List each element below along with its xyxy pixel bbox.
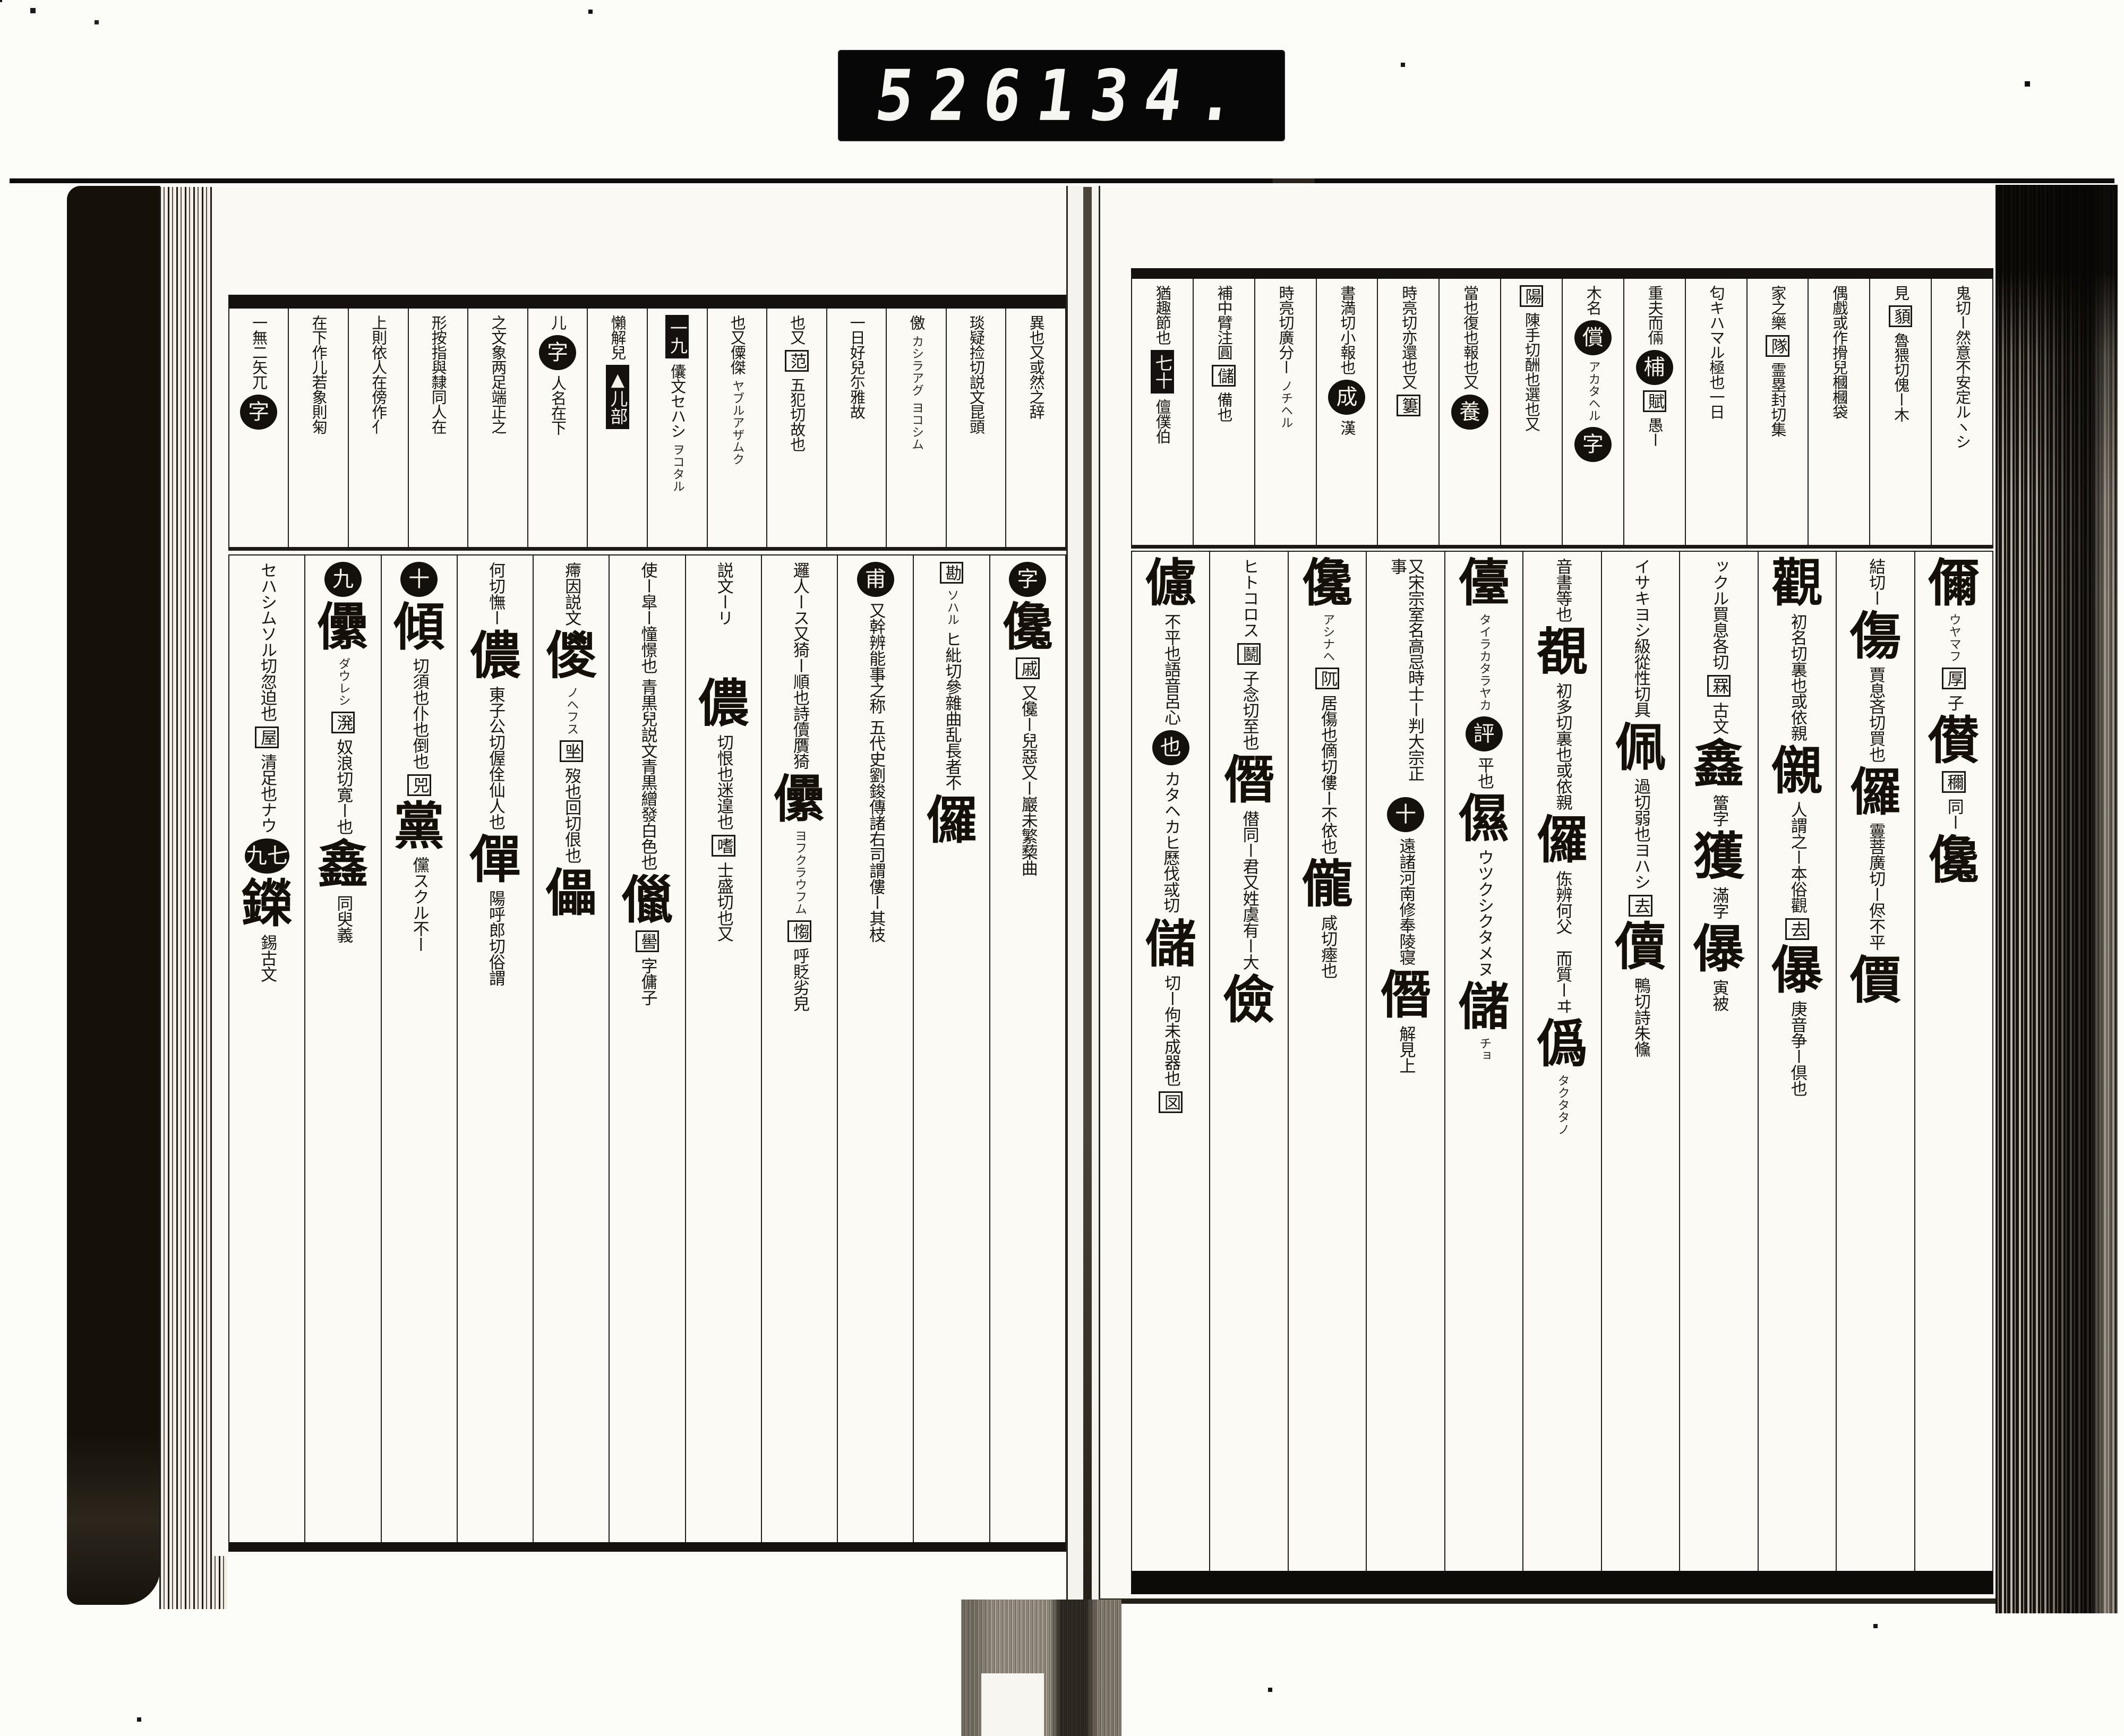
headword-char: 僭 xyxy=(1380,970,1431,1020)
annotation-text: 音書等也 xyxy=(1554,558,1571,622)
boxed-char: 鬭 xyxy=(1237,643,1261,665)
circle-marker: 字 xyxy=(539,335,576,370)
right-page-stack-edge xyxy=(1995,185,2118,1613)
katakana-gloss: ノヘフス xyxy=(565,686,578,735)
annotation-text: 儃僕伯 xyxy=(1154,399,1171,443)
left-header-column: 琰疑捡切説文昆頭 xyxy=(946,309,1006,547)
annotation-text: 異也又或然之辞 xyxy=(1027,315,1044,419)
boxed-char: 兕 xyxy=(407,774,431,796)
headword-char: 儤 xyxy=(1771,945,1822,995)
annotation-text: イサキヨシ級從性切具 xyxy=(1632,558,1649,717)
right-body-column: 又宋宗室名高忌時士ー判大宗正事十遠諸河南修奉陵寝僭解見上 xyxy=(1366,552,1444,1571)
headword-char: 儲 xyxy=(1145,919,1196,969)
annotation-text: 時亮切廣分ー xyxy=(1277,285,1294,374)
left-header-column: 形按指與隸同人在 xyxy=(408,309,468,547)
black-label: ▲儿部 xyxy=(606,365,629,429)
annotation-text: 呼貶劣皃 xyxy=(791,947,808,1011)
left-body-column: 九儽ダウレシ溌奴浪切寛ー也鑫同臾義 xyxy=(304,555,380,1542)
left-body-column: 何切憮ー儂東子公切偓佺仙人也僤陽呼郎切俗謂 xyxy=(457,555,533,1542)
right-header-column: 書満切小報也成漢 xyxy=(1316,279,1377,545)
annotation-text: 見 xyxy=(1892,285,1909,300)
annotation-text: 重夫而倆 xyxy=(1646,285,1663,345)
annotation-text: 家之樂 xyxy=(1769,285,1786,330)
annotation-text: 子念切至也 xyxy=(1240,670,1258,750)
annotation-text: 結切ー xyxy=(1866,558,1884,606)
katakana-gloss: タイラカタラヤカ xyxy=(1477,613,1490,711)
right-page-body-band: 儞ウヤマフ厚子儧穪同ー儳結切ー傷賈息吝切買也儸霻菩廣切ー侭不平價觀初名切裏也或依… xyxy=(1131,551,1993,1594)
headword-char: 儳 xyxy=(1928,835,1979,885)
headword-char: 儭 xyxy=(1771,746,1822,796)
annotation-text: 字傭子 xyxy=(639,957,656,1005)
book-top-edge-line xyxy=(10,178,2114,183)
right-body-column: イサキヨシ級從性切具佩過切弱也ヨハシ去儥鴨切詩朱儵 xyxy=(1601,552,1679,1571)
circle-marker: 養 xyxy=(1451,395,1488,430)
counter-left-digits: 526 xyxy=(872,61,1041,131)
circle-marker: 評 xyxy=(1466,716,1503,751)
annotation-text: 人名在下 xyxy=(550,375,566,435)
headword-char: 儓 xyxy=(1459,558,1510,608)
headword-char: 黨 xyxy=(393,801,444,851)
annotation-text: 人謂之ー本俗觀 xyxy=(1788,801,1806,913)
left-header-column: 儌カシラアグヨコシム xyxy=(886,309,946,547)
boxed-char: 儲 xyxy=(1212,365,1236,387)
circle-marker: 十 xyxy=(400,562,438,597)
left-page-stack-edge xyxy=(67,186,160,1605)
headword-char: 價 xyxy=(1850,955,1901,1005)
boxed-char: 㥮 xyxy=(787,920,811,942)
boxed-char: 穪 xyxy=(1942,771,1966,793)
spine-tab xyxy=(961,1600,1121,1736)
right-header-column: 鬼切ー然意不安定ルヽシ xyxy=(1931,279,1992,545)
headword-char: 儸 xyxy=(1537,815,1588,865)
annotation-text: 時亮切亦還也又 xyxy=(1400,285,1417,389)
boxed-char: 㘝 xyxy=(1159,1091,1183,1113)
headword-char: 儱 xyxy=(1302,859,1353,909)
annotation-text: 使ー皐ー憧憬也 xyxy=(639,562,656,673)
left-header-column: 一九儾文セハシヲコタル xyxy=(647,309,707,547)
annotation-text: 過切弱也ヨハシ xyxy=(1632,778,1649,890)
annotation-text: ヒトコロス xyxy=(1240,558,1258,638)
annotation-text: 也又僳傑 xyxy=(729,315,745,374)
annotation-text: 形按指與隸同人在 xyxy=(430,315,447,434)
katakana-gloss: ヨフクラウフム xyxy=(793,829,806,915)
annotation-text: 鴨切詩朱儵 xyxy=(1632,977,1649,1057)
right-header-column: 陽陳手切酬也選也又 xyxy=(1500,279,1562,545)
left-header-column: 儿字人名在下 xyxy=(527,309,587,547)
boxed-char: 賦 xyxy=(1643,390,1667,412)
annotation-text: 備也 xyxy=(1215,392,1232,422)
annotation-text: 賈息吝切買也 xyxy=(1866,666,1884,762)
left-header-column: 在下作儿若象則匊 xyxy=(288,309,348,547)
left-body-column: セハシムソル切忽迫也屋清足也ナウ九七鑅錫古文 xyxy=(229,555,304,1542)
annotation-text: 書満切小報也 xyxy=(1339,285,1355,374)
annotation-text: ックル買息各切 xyxy=(1710,558,1727,670)
annotation-text: 一無二矢兀 xyxy=(251,315,267,389)
annotation-text: 同ー xyxy=(1945,798,1963,830)
annotation-text: 上則依人在傍作亻 xyxy=(370,315,387,434)
annotation-text: 當也復也報也又 xyxy=(1462,285,1478,389)
black-label: 七十 xyxy=(1151,350,1174,394)
circle-marker: 字 xyxy=(1574,427,1612,462)
annotation-text: 儻スクル不ー xyxy=(410,857,428,952)
annotation-text: 庚音争ー倶也 xyxy=(1788,1000,1806,1096)
circle-marker: 償 xyxy=(1574,320,1612,355)
left-header-column: 上則依人在傍作亻 xyxy=(348,309,408,547)
left-page: 異也又或然之辞琰疑捡切説文昆頭儌カシラアグヨコシム一日好兒尓雅故也又范五犯切故也… xyxy=(212,187,1066,1556)
circle-marker: 成 xyxy=(1328,380,1365,415)
right-header-column: 猶趣節也七十儃僕伯 xyxy=(1132,279,1193,545)
left-page-body-band: 字儳戚又儳ー兒惡又ー巖未繁蔾曲勘ソハルヒ紕切參雜曲乱長者不儸甫又幹辨能事之称五代… xyxy=(228,554,1066,1552)
right-body-column: 儓タイラカタラヤカ評平也儑ウツクシクタメヌ儲チョ xyxy=(1444,552,1522,1571)
annotation-text: 又儳ー兒惡又ー巖未繁蔾曲 xyxy=(1019,685,1037,876)
boxed-char: 阢 xyxy=(1315,668,1339,689)
annotation-text: 青黒兒説文青黒繒發白色也 xyxy=(639,679,656,870)
headword-char: 儲 xyxy=(1459,982,1510,1032)
right-header-column: 匂キハマル極也一日 xyxy=(1685,279,1746,545)
annotation-text: 初名切裏也或依親 xyxy=(1788,613,1806,741)
annotation-text: 古文 xyxy=(1710,702,1727,734)
annotation-text: 寅被 xyxy=(1710,979,1727,1011)
left-header-column: 異也又或然之辞 xyxy=(1005,309,1065,547)
circle-marker: 九 xyxy=(324,562,362,597)
annotation-text: 東子公切偓佺仙人也 xyxy=(486,686,504,829)
boxed-char: 范 xyxy=(785,350,809,372)
headword-char: 儢 xyxy=(1145,558,1196,608)
katakana-gloss: ヨコシム xyxy=(910,401,922,450)
headword-char: 傾 xyxy=(393,602,444,652)
right-header-column: 時亮切廣分ーノチヘル xyxy=(1254,279,1316,545)
right-header-column: 補中臂注圓儲備也 xyxy=(1193,279,1254,545)
headword-char: 儠 xyxy=(622,875,673,925)
left-body-column: 使ー皐ー憧憬也青黒兒説文青黒繒發白色也儠嚳字傭子 xyxy=(609,555,684,1542)
boxed-char: 㘴 xyxy=(560,740,584,762)
headword-char: 儂 xyxy=(698,679,749,729)
circle-marker: 甫 xyxy=(857,562,894,597)
annotation-text: 偶戲或作搰兒槶槶袋 xyxy=(1831,285,1847,419)
headword-char: 儥 xyxy=(1615,922,1666,972)
katakana-gloss: チョ xyxy=(1477,1037,1490,1062)
right-body-column: 結切ー傷賈息吝切買也儸霻菩廣切ー侭不平價 xyxy=(1836,552,1914,1571)
headword-char: 儳 xyxy=(1302,558,1353,608)
annotation-text: 在下作儿若象則匊 xyxy=(310,315,327,434)
headword-char: 觀 xyxy=(1771,558,1822,608)
annotation-text: 㑈辨何父𢋫而質ーヰ xyxy=(1554,870,1571,1014)
headword-char: 僤 xyxy=(470,835,521,885)
right-header-column: 家之樂隊霊塁封切集 xyxy=(1746,279,1808,545)
circle-marker: 字 xyxy=(240,395,277,430)
left-header-column: 也又僳傑ヤブルアザムク xyxy=(707,309,767,547)
annotation-text: 魯猥切傀ー木 xyxy=(1892,332,1909,422)
right-body-column: 儞ウヤマフ厚子儧穪同ー儳 xyxy=(1914,552,1992,1571)
boxed-char: 屋 xyxy=(255,726,279,748)
katakana-gloss: アカタヘル xyxy=(1587,361,1599,422)
annotation-text: 五代史劉鋑傳諸右司謂僂ー其枝 xyxy=(867,719,884,942)
annotation-text: 匂キハマル極也一日 xyxy=(1708,285,1724,419)
annotation-text: 咸切瘞也 xyxy=(1318,914,1336,978)
annotation-text: 不平也語音呂心 xyxy=(1162,613,1179,725)
headword-char: 儸 xyxy=(1850,767,1901,817)
left-body-column: 説文ーリ𠫤不齊儂切恨也迷遑也嗜士盛切也又 xyxy=(685,555,761,1542)
annotation-text: 士盛切也又 xyxy=(715,862,732,942)
annotation-text: 切須也仆也倒也 xyxy=(410,657,428,769)
annotation-text: 説文ーリ𠫤不齊 xyxy=(715,562,732,673)
annotation-text: 清足也ナウ xyxy=(258,754,276,833)
katakana-gloss: ウヤマフ xyxy=(1947,613,1960,662)
left-body-column: 㿃因説文儍ノヘフス㘴歿也回切佷也儡 xyxy=(533,555,609,1542)
boxed-char: 去 xyxy=(1629,895,1652,917)
annotation-text: 歿也回切佷也 xyxy=(562,767,580,863)
annotation-text: 又宋宗室名高忌時士ー判大宗正事 xyxy=(1388,558,1423,792)
annotation-text: 居傷也㒀切僂ー不依也 xyxy=(1318,695,1336,854)
katakana-gloss: ヲコタル xyxy=(671,443,683,492)
boxed-char: 䫉 xyxy=(1889,305,1913,327)
right-header-column: 當也復也報也又養 xyxy=(1438,279,1500,545)
annotation-text: 奴浪切寛ー也 xyxy=(335,739,352,834)
circle-marker: 九七 xyxy=(245,839,289,874)
right-page: 鬼切ー然意不安定ルヽシ見䫉魯猥切傀ー木偶戲或作搰兒槶槶袋家之樂隊霊塁封切集匂キハ… xyxy=(1100,187,1995,1604)
right-page-header-band: 鬼切ー然意不安定ルヽシ見䫉魯猥切傀ー木偶戲或作搰兒槶槶袋家之樂隊霊塁封切集匂キハ… xyxy=(1131,268,1993,549)
boxed-char: 簍 xyxy=(1397,395,1420,416)
right-body-column: 儳アシナヘ阢居傷也㒀切僂ー不依也儱咸切瘞也 xyxy=(1288,552,1366,1571)
annotation-text: 滿字 xyxy=(1710,887,1727,919)
boxed-char: 勘 xyxy=(940,562,964,584)
headword-char: 鑅 xyxy=(242,879,293,929)
headword-char: 覩 xyxy=(1537,627,1588,677)
circle-marker: 㭪 xyxy=(1636,350,1673,385)
right-body-column: 儢不平也語音呂心也カタヘカヒ𠪾伐㦯切儲切ー佝未成器也㘝 xyxy=(1132,552,1209,1571)
katakana-gloss: ソハル xyxy=(945,589,958,626)
annotation-text: 邏人ース又猗ー順也詩儥贋猗 xyxy=(791,562,808,769)
annotation-text: 儿 xyxy=(550,315,566,330)
left-body-column: 字儳戚又儳ー兒惡又ー巖未繁蔾曲 xyxy=(989,555,1065,1542)
headword-char: 儤 xyxy=(1693,924,1744,974)
annotation-text: 平也 xyxy=(1475,757,1493,789)
annotation-text: 琰疑捡切説文昆頭 xyxy=(968,315,984,434)
katakana-gloss: ダウレシ xyxy=(337,657,349,706)
annotation-text: 解見上 xyxy=(1397,1025,1415,1073)
annotation-text: 陳手切酬也選也又 xyxy=(1523,312,1540,431)
headword-char: 儽 xyxy=(318,602,369,652)
left-header-column: 之文象两足端正之 xyxy=(467,309,527,547)
headword-char: 佩 xyxy=(1615,723,1666,773)
boxed-char: 陽 xyxy=(1520,285,1544,307)
boxed-char: 罧 xyxy=(1707,675,1731,697)
left-body-column: 十傾切須也仆也倒也兕黨儻スクル不ー xyxy=(381,555,457,1542)
annotation-text: 㿃因説文 xyxy=(562,562,580,626)
annotation-text: 遠諸河南修奉陵寝 xyxy=(1397,837,1415,965)
headword-char: 僭 xyxy=(1223,755,1274,805)
annotation-text: 也又 xyxy=(789,315,805,345)
annotation-text: 懶解兒 xyxy=(609,315,626,360)
headword-char: 儧 xyxy=(1928,716,1979,766)
annotation-text: カタヘカヒ𠪾伐㦯切 xyxy=(1162,771,1179,914)
scan-dust-specks xyxy=(0,0,2,2)
annotation-text: セハシムソル切忽迫也 xyxy=(258,562,276,721)
annotation-text: 同臾義 xyxy=(335,895,352,943)
headword-char: 傷 xyxy=(1850,611,1901,661)
annotation-text: ヒ紕切參雜曲乱長者不 xyxy=(943,631,961,790)
annotation-text: 愚ー xyxy=(1646,417,1663,447)
right-header-column: 時亮切亦還也又簍 xyxy=(1377,279,1438,545)
right-body-column: 觀初名切裏也或依親儭人謂之ー本俗觀去儤庚音争ー倶也 xyxy=(1758,552,1836,1571)
headword-char: 儞 xyxy=(1928,558,1979,608)
headword-char: 儍 xyxy=(546,631,597,681)
headword-char: 鑫 xyxy=(1693,739,1744,789)
katakana-gloss: ノチヘル xyxy=(1279,380,1292,429)
headword-char: 儑 xyxy=(1459,794,1510,844)
circle-marker: 也 xyxy=(1152,730,1189,765)
left-header-column: 一日好兒尓雅故 xyxy=(826,309,886,547)
annotation-text: 鬼切ー然意不安定ルヽシ xyxy=(1954,285,1971,449)
boxed-char: 戚 xyxy=(1016,657,1040,679)
black-label: 一九 xyxy=(665,315,689,358)
headword-char: 儳 xyxy=(1002,602,1053,652)
annotation-text: 儾文セハシ xyxy=(669,364,686,438)
headword-char: 儸 xyxy=(926,796,977,845)
right-body-column: 音書等也覩初多切裏也或依親儸㑈辨何父𢋫而質ーヰ僞タクタタノ xyxy=(1522,552,1600,1571)
left-body-column: 勘ソハルヒ紕切參雜曲乱長者不儸 xyxy=(913,555,989,1542)
circle-marker: 十 xyxy=(1387,797,1424,832)
annotation-text: 補中臂注圓 xyxy=(1215,285,1232,360)
boxed-char: 隊 xyxy=(1766,335,1789,357)
boxed-char: 厚 xyxy=(1942,668,1966,689)
right-header-column: 見䫉魯猥切傀ー木 xyxy=(1869,279,1931,545)
left-page-header-band: 異也又或然之辞琰疑捡切説文昆頭儌カシラアグヨコシム一日好兒尓雅故也又范五犯切故也… xyxy=(228,295,1066,551)
annotation-text: 一日好兒尓雅故 xyxy=(849,315,865,419)
annotation-text: 初多切裏也或依親 xyxy=(1554,682,1571,810)
headword-char: 儽 xyxy=(774,774,825,824)
left-header-column: 也又范五犯切故也 xyxy=(766,309,826,547)
annotation-text: 之文象两足端正之 xyxy=(490,315,506,434)
annotation-text: ウツクシクタメヌ xyxy=(1475,849,1493,977)
boxed-char: 溌 xyxy=(331,712,355,733)
annotation-text: 又幹辨能事之称 xyxy=(867,602,884,714)
boxed-char: 嚳 xyxy=(636,930,660,952)
annotation-text: 子 xyxy=(1945,695,1963,711)
annotation-text: 錫古文 xyxy=(258,934,276,982)
katakana-gloss: カシラアグ xyxy=(910,335,922,396)
left-body-column: 甫又幹辨能事之称五代史劉鋑傳諸右司謂僂ー其枝 xyxy=(837,555,913,1542)
right-body-column: ヒトコロス鬭子念切至也僭僣同ー君又姓虞有ー大儉 xyxy=(1209,552,1287,1571)
annotation-text: 霻菩廣切ー侭不平 xyxy=(1866,823,1884,950)
annotation-text: 漢 xyxy=(1339,420,1355,435)
spine-tab-white-patch xyxy=(981,1673,1044,1736)
headword-char: 儉 xyxy=(1223,975,1274,1025)
annotation-text: 切ー佝未成器也 xyxy=(1162,974,1179,1086)
annotation-text: 簹字 xyxy=(1710,794,1727,826)
circle-marker: 字 xyxy=(1009,562,1046,597)
katakana-gloss: ヤブルアザムク xyxy=(731,380,743,465)
book-gutter-center-line xyxy=(1083,187,1092,1733)
annotation-text: 霊塁封切集 xyxy=(1769,362,1786,437)
frame-counter-display: 526 134. xyxy=(839,51,1284,140)
right-header-column: 偶戲或作搰兒槶槶袋 xyxy=(1808,279,1869,545)
annotation-text: 切恨也迷遑也 xyxy=(715,734,732,829)
boxed-char: 嗜 xyxy=(712,835,735,857)
headword-char: 獲 xyxy=(1693,832,1744,882)
headword-char: 鑫 xyxy=(318,840,369,890)
annotation-text: 何切憮ー xyxy=(486,562,504,626)
left-body-column: 邏人ース又猗ー順也詩儥贋猗儽ヨフクラウフム㥮呼貶劣皃 xyxy=(761,555,837,1542)
left-header-column: 懶解兒▲儿部 xyxy=(587,309,647,547)
boxed-char: 去 xyxy=(1785,918,1809,940)
annotation-text: 僣同ー君又姓虞有ー大 xyxy=(1240,810,1258,970)
annotation-text: 陽呼郎切俗謂 xyxy=(486,890,504,986)
annotation-text: 五犯切故也 xyxy=(789,377,805,451)
katakana-gloss: タクタタノ xyxy=(1556,1074,1569,1135)
right-body-column: ックル買息各切罧古文鑫簹字獲滿字儤寅被 xyxy=(1679,552,1757,1571)
katakana-gloss: アシナヘ xyxy=(1321,613,1334,662)
right-header-column: 重夫而倆㭪賦愚ー xyxy=(1623,279,1685,545)
right-header-column: 木名償アカタヘル字 xyxy=(1562,279,1623,545)
left-header-column: 一無二矢兀字 xyxy=(229,309,288,547)
headword-char: 僞 xyxy=(1537,1019,1588,1069)
annotation-text: 木名 xyxy=(1585,285,1601,315)
annotation-text: 猶趣節也 xyxy=(1154,285,1171,345)
headword-char: 儂 xyxy=(470,631,521,681)
headword-char: 儡 xyxy=(546,868,597,918)
counter-right-digits: 134. xyxy=(1033,61,1256,131)
annotation-text: 儌 xyxy=(908,315,924,330)
